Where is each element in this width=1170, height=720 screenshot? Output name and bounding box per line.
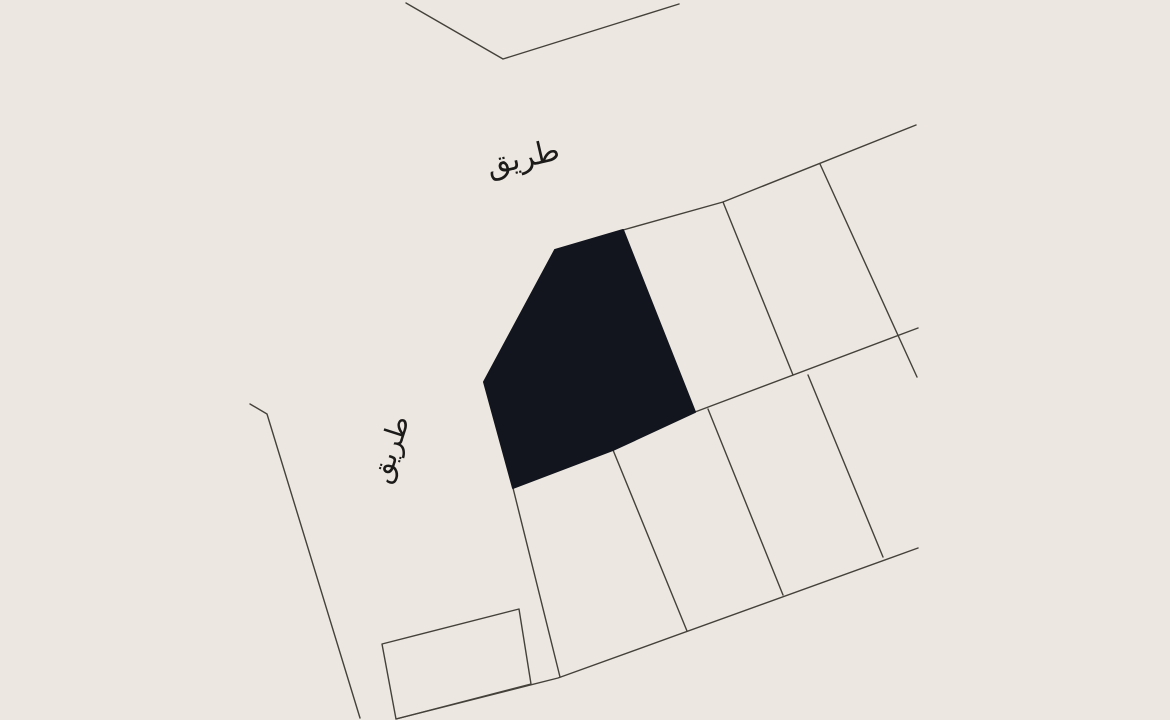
parcel-boundary-line bbox=[723, 202, 793, 375]
plot-map[interactable]: طريق طريق bbox=[0, 0, 1170, 720]
parcel-boundary-line bbox=[513, 488, 560, 677]
parcel-map-drawing bbox=[0, 0, 1170, 720]
lower-road-edge-line bbox=[396, 548, 918, 719]
left-road-edge-line bbox=[250, 404, 360, 718]
parcel-boundary-line bbox=[613, 450, 687, 631]
highlighted-parcel[interactable] bbox=[484, 230, 695, 488]
small-parcel-outline bbox=[382, 609, 531, 719]
parcel-boundary-line bbox=[820, 164, 917, 377]
parcel-boundary-line bbox=[808, 375, 883, 557]
middle-block-boundary-line bbox=[695, 328, 918, 412]
parcel-boundary-line bbox=[708, 409, 783, 595]
north-boundary-line bbox=[406, 3, 679, 59]
